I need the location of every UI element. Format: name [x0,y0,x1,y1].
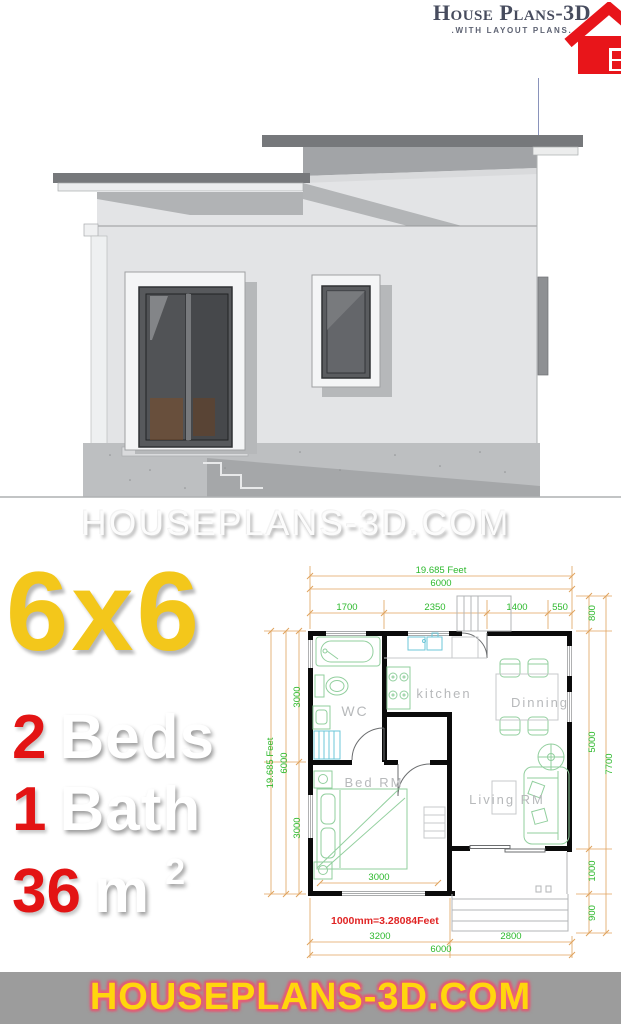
fixtures [313,637,569,879]
red-house-icon [568,8,621,74]
floor-plan: 19.685 Feet 6000 1700 2350 1400 550 800 … [250,555,621,967]
dim-left-3000-bottom: 3000 [292,817,303,838]
room-label-living: Living RM [469,792,545,807]
room-labels: kitchen Dinning WC Bed RM Living RM [341,686,569,807]
walls [308,631,572,896]
bed [317,789,407,869]
kitchen-cabinet [452,637,478,658]
dim-right-7700: 7700 [604,753,615,774]
washing-machine [314,731,340,759]
dim-left-6000: 6000 [279,752,290,773]
bath-spec: 1 Bath [12,779,201,841]
room-label-dining: Dinning [511,695,569,710]
front-door [125,272,257,454]
area-exponent: 2 [165,854,185,890]
wc-basin-bowl [316,710,327,724]
dim-top-1400: 1400 [506,602,527,613]
bathtub [316,637,380,666]
watermark-text: HOUSEPLANS-3D.COM [0,504,592,544]
beds-count: 2 [12,707,46,769]
dresser [424,807,445,838]
area-value: 36 [12,861,81,923]
footer-banner: HOUSEPLANS-3D.COM [0,972,621,1024]
beds-spec: 2 Beds [12,707,215,769]
bath-label: Bath [59,779,201,841]
stove [387,667,410,709]
poster-canvas: House Plans-3D .WITH LAYOUT PLANS. [0,0,621,1024]
area-spec: 36 m 2 [12,861,183,923]
room-label-bed: Bed RM [345,775,404,790]
dim-right-900: 900 [587,905,598,921]
toilet [315,675,348,697]
room-label-wc: WC [341,703,368,719]
dim-top-total: 6000 [430,578,451,589]
plot-size-title: 6x6 [6,556,202,668]
ceiling-fan [538,744,564,770]
dim-bottom-6000: 6000 [430,944,451,955]
dim-top-feet: 19.685 Feet [416,565,467,576]
logo-leader-line [538,78,539,135]
front-window [312,275,392,397]
dim-top-550: 550 [552,602,568,613]
dim-left-feet: 19.685 Feet [265,737,276,788]
brand-logo: House Plans-3D .WITH LAYOUT PLANS. [407,2,617,35]
dim-top-1700: 1700 [336,602,357,613]
bath-count: 1 [12,779,46,841]
dim-bed-3000: 3000 [368,872,389,883]
house-3d-render [0,130,621,505]
dim-right-1000: 1000 [587,860,598,881]
dim-right-800: 800 [587,605,598,621]
side-shutter-panel [538,277,548,375]
area-unit: m [94,861,150,923]
room-label-kitchen: kitchen [416,686,471,701]
house-logo-icon [512,2,621,80]
beds-label: Beds [59,707,215,769]
dim-bottom-3200: 3200 [369,931,390,942]
dim-top-2350: 2350 [424,602,445,613]
footer-site-url: HOUSEPLANS-3D.COM [0,972,621,1023]
dim-right-5000: 5000 [587,731,598,752]
dim-left-3000-top: 3000 [292,686,303,707]
dim-bottom-2800: 2800 [500,931,521,942]
scale-note: 1000mm=3.28084Feet [331,915,439,927]
